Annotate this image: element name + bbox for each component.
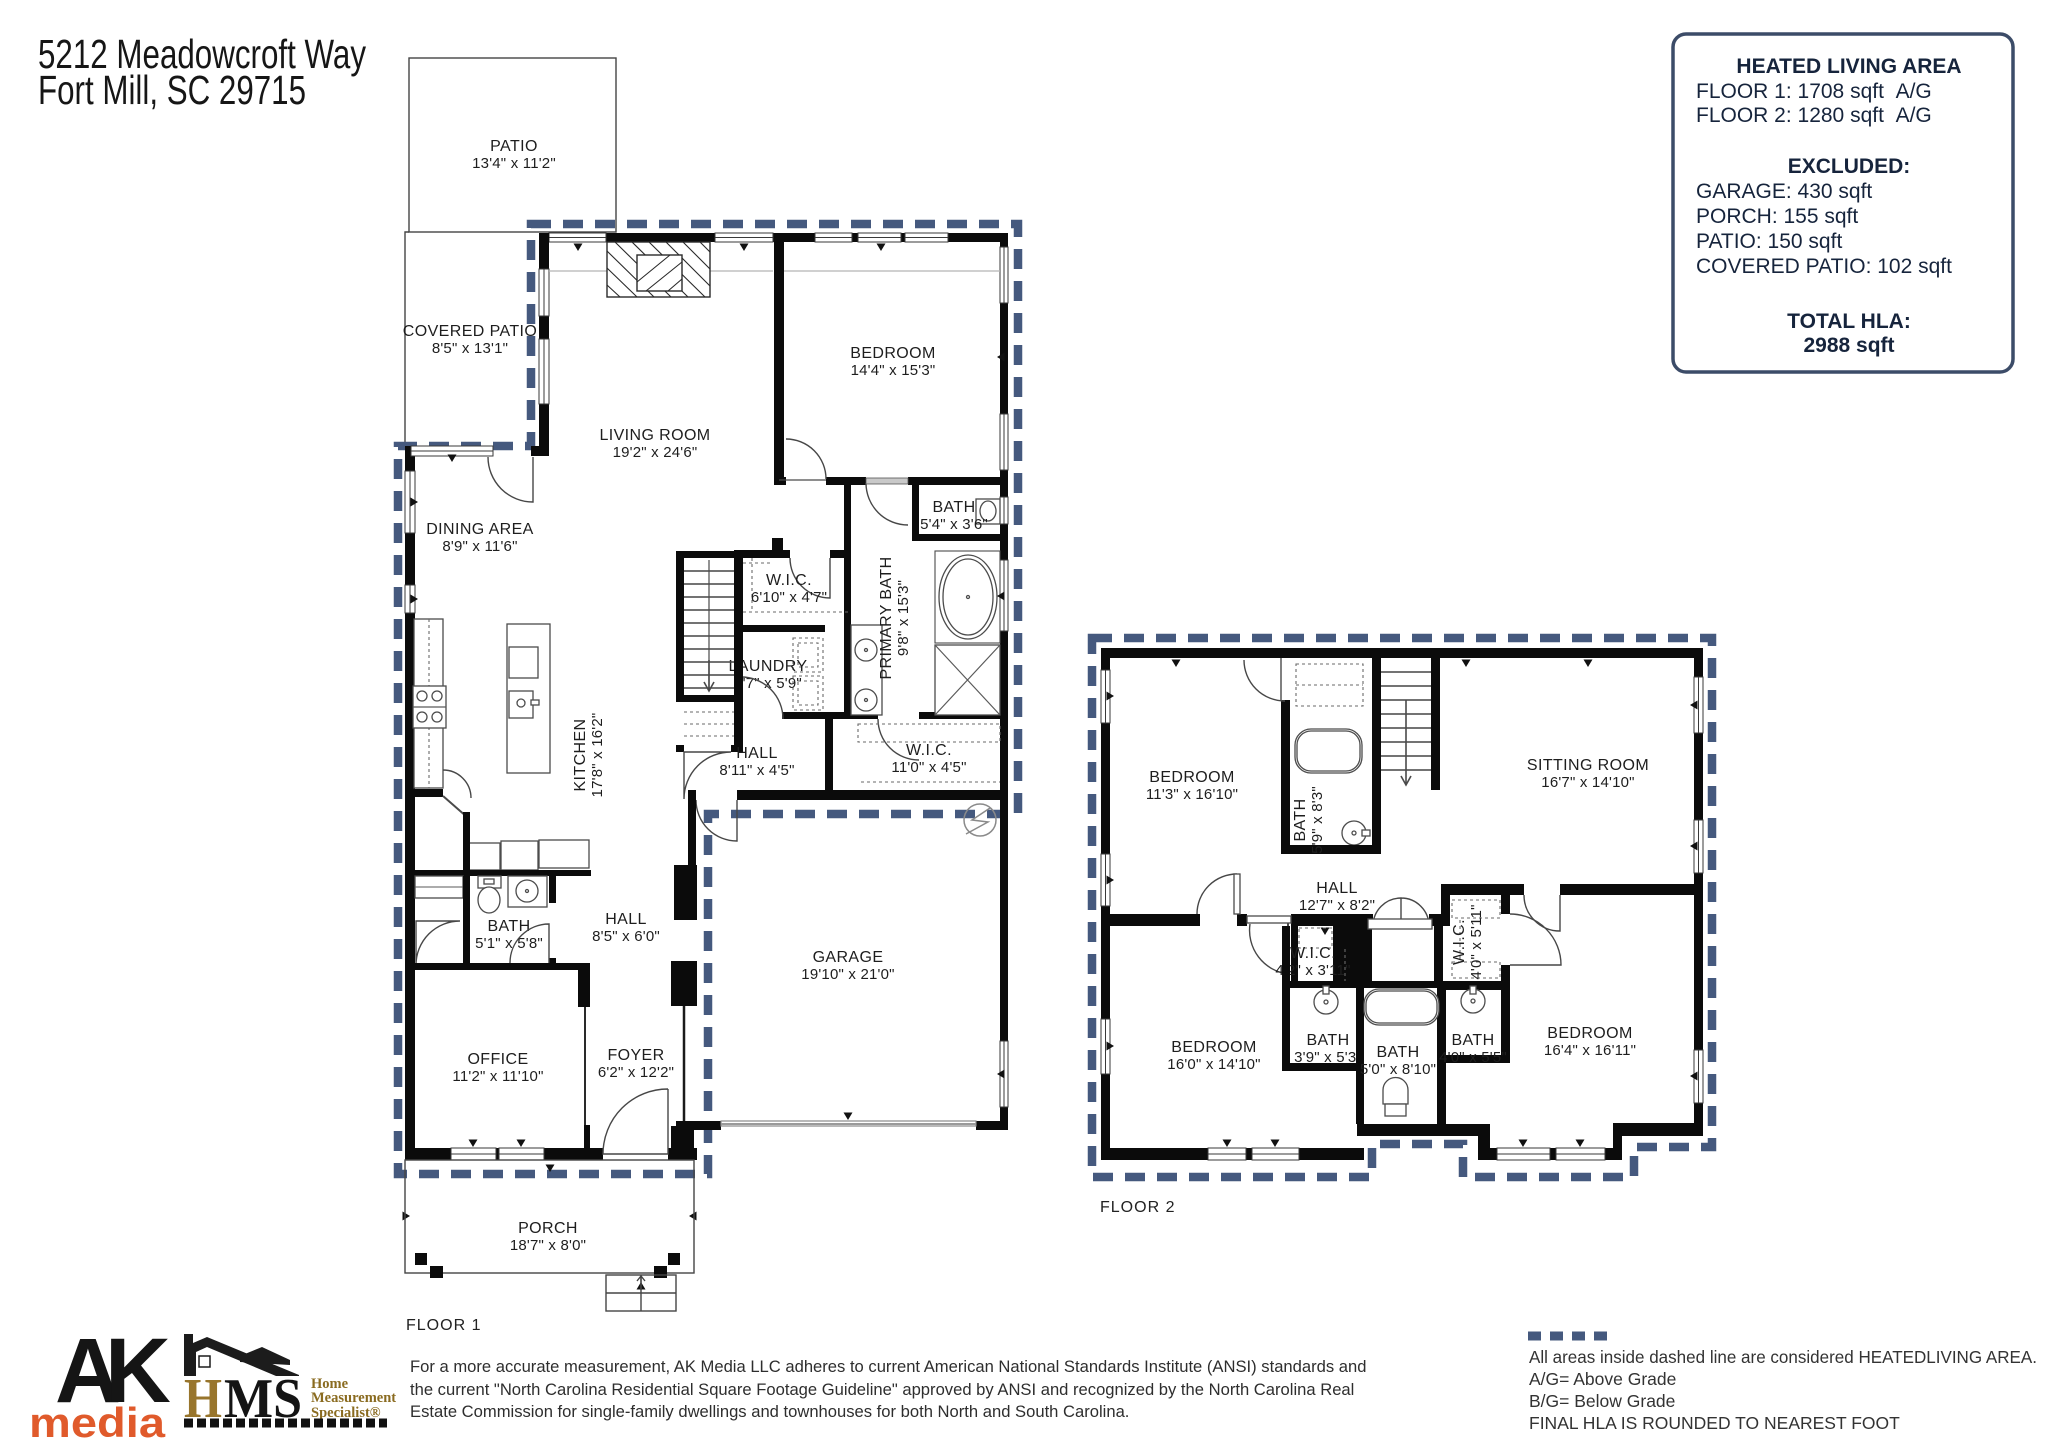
svg-text:FLOOR 1: FLOOR 1 [406,1317,481,1334]
svg-text:B/G= Below Grade: B/G= Below Grade [1529,1391,1675,1411]
svg-text:4'0" x 5'5": 4'0" x 5'5" [1439,1049,1507,1066]
svg-text:BEDROOM: BEDROOM [1547,1025,1632,1042]
svg-text:BEDROOM: BEDROOM [1171,1039,1256,1056]
svg-text:the current "North Carolina Re: the current "North Carolina Residential … [410,1380,1354,1399]
svg-text:PORCH: PORCH [518,1220,578,1237]
svg-text:3'9" x 5'3": 3'9" x 5'3" [1294,1049,1362,1066]
svg-text:LIVING ROOM: LIVING ROOM [599,427,710,444]
svg-text:All areas inside dashed line a: All areas inside dashed line are conside… [1529,1347,2037,1367]
svg-text:COVERED PATIO: 102 sqft: COVERED PATIO: 102 sqft [1696,255,1952,278]
svg-text:19'2" x 24'6": 19'2" x 24'6" [613,444,698,461]
svg-text:HALL: HALL [1316,880,1358,897]
svg-text:9'8" x 15'3": 9'8" x 15'3" [895,580,912,656]
svg-text:2988 sqft: 2988 sqft [1803,334,1894,357]
svg-text:FLOOR 2: 1280 sqft A/G: FLOOR 2: 1280 sqft A/G [1696,104,1932,127]
svg-text:Estate Commission for single-f: Estate Commission for single-family dwel… [410,1402,1129,1421]
svg-text:W.I.C.: W.I.C. [906,742,952,759]
svg-text:16'0" x 14'10": 16'0" x 14'10" [1167,1056,1260,1073]
svg-text:18'7" x 8'0": 18'7" x 8'0" [510,1237,586,1254]
svg-text:TOTAL HLA:: TOTAL HLA: [1787,310,1911,333]
svg-text:KITCHEN: KITCHEN [572,718,589,791]
svg-text:BATH: BATH [1306,1032,1349,1049]
svg-text:HALL: HALL [605,911,647,928]
svg-text:BEDROOM: BEDROOM [1149,769,1234,786]
svg-text:BATH: BATH [1451,1032,1494,1049]
svg-text:8'9" x 11'6": 8'9" x 11'6" [442,538,517,555]
svg-text:A/G= Above Grade: A/G= Above Grade [1529,1369,1676,1389]
svg-text:GARAGE: 430 sqft: GARAGE: 430 sqft [1696,180,1872,203]
svg-text:OFFICE: OFFICE [467,1051,528,1068]
svg-text:13'4" x 11'2": 13'4" x 11'2" [472,155,556,172]
svg-text:16'7" x 14'10": 16'7" x 14'10" [1541,774,1634,791]
svg-text:GARAGE: GARAGE [813,949,884,966]
svg-text:Measurement: Measurement [311,1390,396,1406]
svg-text:SITTING ROOM: SITTING ROOM [1527,757,1649,774]
svg-text:EXCLUDED:: EXCLUDED: [1788,155,1911,178]
svg-text:6'10" x 4'7": 6'10" x 4'7" [751,589,827,606]
svg-text:PRIMARY BATH: PRIMARY BATH [878,556,895,679]
svg-text:COVERED PATIO: COVERED PATIO [403,323,537,340]
svg-text:FLOOR 2: FLOOR 2 [1100,1199,1175,1216]
svg-text:11'0" x 4'5": 11'0" x 4'5" [891,759,966,776]
svg-text:PATIO: 150 sqft: PATIO: 150 sqft [1696,230,1842,253]
svg-text:8'5" x 6'0": 8'5" x 6'0" [592,928,660,945]
svg-text:BATH: BATH [932,499,975,516]
svg-text:17'8" x 16'2": 17'8" x 16'2" [589,713,606,798]
svg-text:FLOOR 1: 1708 sqft A/G: FLOOR 1: 1708 sqft A/G [1696,80,1932,103]
svg-text:HALL: HALL [736,745,778,762]
svg-text:W.I.C.: W.I.C. [1290,945,1336,962]
svg-text:W.I.C.: W.I.C. [1451,919,1468,965]
svg-text:6'2" x 12'2": 6'2" x 12'2" [598,1064,674,1081]
svg-text:FINAL HLA IS ROUNDED TO NEARES: FINAL HLA IS ROUNDED TO NEAREST FOOT [1529,1413,1900,1433]
svg-text:FOYER: FOYER [607,1047,664,1064]
svg-text:16'4" x 16'11": 16'4" x 16'11" [1544,1042,1636,1059]
svg-text:For a more accurate measuremen: For a more accurate measurement, AK Medi… [410,1357,1366,1376]
svg-text:11'2" x 11'10": 11'2" x 11'10" [452,1068,543,1085]
svg-text:14'4" x 15'3": 14'4" x 15'3" [851,362,936,379]
svg-text:5'0" x 8'10": 5'0" x 8'10" [1360,1061,1436,1078]
svg-text:19'10" x 21'0": 19'10" x 21'0" [801,966,894,983]
svg-text:12'7" x 8'2": 12'7" x 8'2" [1299,897,1375,914]
svg-text:media: media [29,1399,166,1446]
svg-text:Fort Mill, SC 29715: Fort Mill, SC 29715 [38,67,306,113]
svg-text:PORCH: 155 sqft: PORCH: 155 sqft [1696,205,1858,228]
svg-text:5'9" x 8'3": 5'9" x 8'3" [1309,786,1326,854]
svg-text:11'3" x 16'10": 11'3" x 16'10" [1146,786,1238,803]
svg-text:DINING AREA: DINING AREA [426,521,534,538]
svg-text:PATIO: PATIO [490,138,538,155]
svg-text:HEATED LIVING AREA: HEATED LIVING AREA [1736,55,1961,78]
svg-text:BATH: BATH [1292,798,1309,841]
svg-text:W.I.C.: W.I.C. [766,572,812,589]
svg-text:BEDROOM: BEDROOM [850,345,935,362]
svg-text:8'5" x 13'1": 8'5" x 13'1" [432,340,508,357]
svg-text:4'0" x 5'11": 4'0" x 5'11" [1468,904,1485,979]
svg-text:8'11" x 4'5": 8'11" x 4'5" [719,762,794,779]
svg-text:5'4" x 3'6": 5'4" x 3'6" [920,516,988,533]
svg-text:BATH: BATH [1376,1044,1419,1061]
svg-text:5'1" x 5'8": 5'1" x 5'8" [475,935,543,952]
